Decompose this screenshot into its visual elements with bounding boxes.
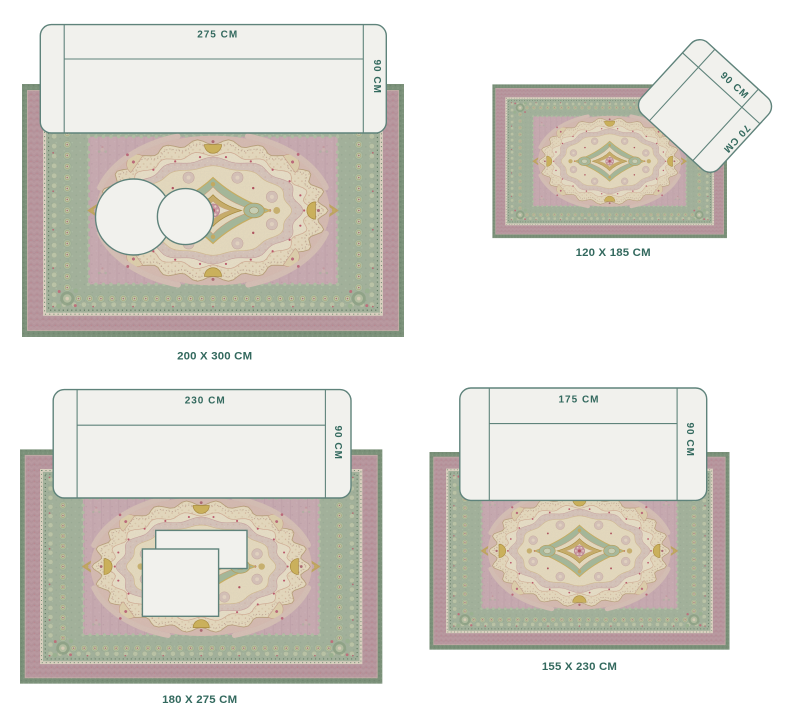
svg-text:180 X 275 CM: 180 X 275 CM [162,694,237,706]
svg-text:90 CM: 90 CM [371,59,382,93]
svg-text:275 CM: 275 CM [197,29,238,40]
svg-text:175 CM: 175 CM [558,395,599,406]
svg-text:230 CM: 230 CM [185,396,226,407]
svg-text:90 CM: 90 CM [332,425,343,459]
svg-text:200 X 300 CM: 200 X 300 CM [177,350,252,362]
svg-text:155 X 230 CM: 155 X 230 CM [542,661,617,673]
svg-text:120 X 185 CM: 120 X 185 CM [576,247,651,259]
svg-text:90 CM: 90 CM [684,422,695,456]
